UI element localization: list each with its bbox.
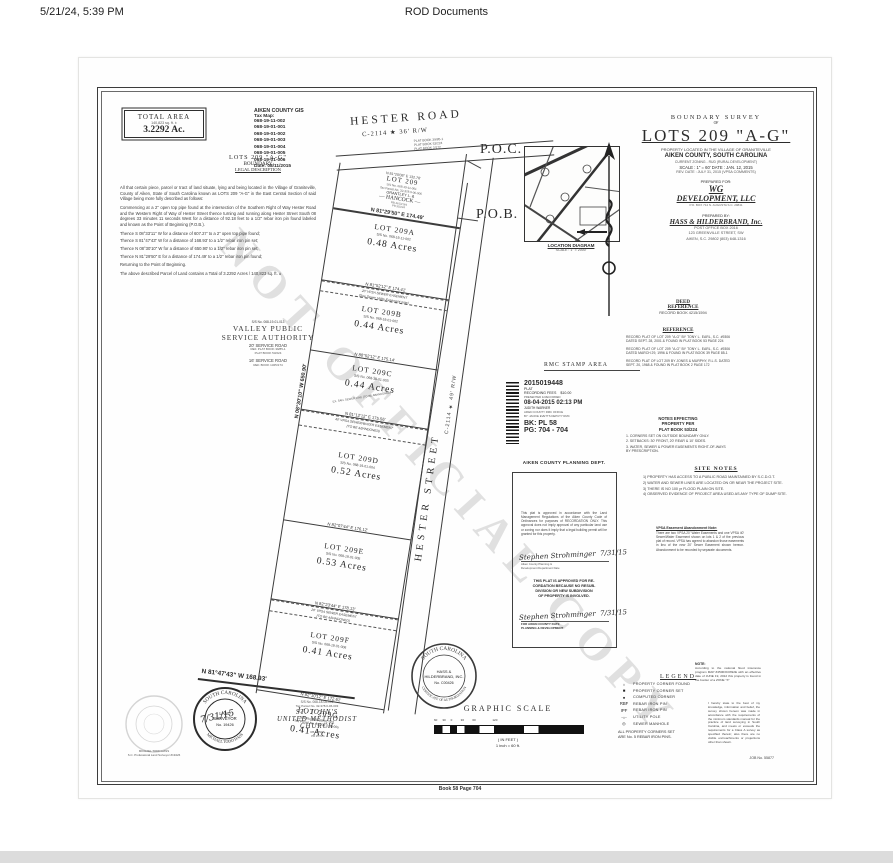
of-label: OF [616,121,816,125]
lot-209f: LOT 209F S/S No. 068-19-01-006 0.41 Acre… [257,623,394,710]
site-notes-heading: SITE NOTES [643,466,789,472]
reference-paragraph: RECORD PLAT OF LOT 209 "A-G" BY TONY L. … [626,335,730,344]
firm-name: HASS & HILDERBRAND, Inc. [616,218,816,226]
legal-description-heading: LOTS 209 "A-G" BOUNDARY LEGAL DESCRIPTIO… [178,154,338,172]
valley-ref2: REF. BOOK 1325/174 [214,363,322,367]
vpsa-note-body: There are two VPSA 20' Water Easements a… [656,531,744,552]
header-title: ROD Documents [0,6,893,18]
plat-drawing: NOT OFFICIAL COPY TOTAL AREA 140,823 sq.… [97,87,817,785]
total-area-box: TOTAL AREA 140,823 sq. ft. ± 3.2292 Ac. [124,110,204,138]
site-note-item: 1) PROPERTY HAS ACCESS TO A PUBLIC ROAD … [643,475,789,480]
lot-bearing-line: N 82°07'44" E 176.12' [284,514,411,539]
flood-note-body: According to the national flood insuranc… [695,666,761,682]
property-location-line2: AIKEN COUNTY, SOUTH CAROLINA [616,153,816,159]
notes-effecting-heading: NOTES EFFECTING PROPERTY PER PLAT BOOK 5… [626,416,730,432]
notes-effecting-item: 2. SETBACKS: 30' FRONT, 20' REAR & 10' S… [626,439,730,444]
hester-road-label: HESTER ROAD [350,108,462,128]
vpsa-note-block: VPSA Easement Abandonment Note: There ar… [656,526,744,552]
bottom-page-edge [0,851,893,863]
rmc-presented: PRESENTED & RECORDED [524,395,624,399]
reference-paragraph: RECORD PLAT OF LOT 209 "A-G" BY TONY L. … [626,347,730,356]
rmc-page: PG: 704 - 704 [524,427,624,434]
planning-dept-heading: AIKEN COUNTY PLANNING DEPT. [512,460,616,465]
book-page-footer: Book 58 Page 704 [380,786,540,792]
lot-209g: LOT 209G S/S No. 068-19-01-001 Tax Parce… [245,698,382,783]
site-note-item: 2) WATER AND SEWER LINES ARE LOCATED ON … [643,481,789,486]
client-name-1: WG [616,184,816,194]
title-block: BOUNDARY SURVEY OF LOTS 209 "A-G" PROPER… [616,114,816,242]
site-note-item: 3) THERE IS NO 100 yr FLOOD PLAIN ON SIT… [643,487,789,492]
site-note-item: 4) OBSERVED EVIDENCE OF PROJECT AREA USE… [643,492,789,497]
client-name-2: DEVELOPMENT, LLC [616,194,816,203]
notes-effecting-block: NOTES EFFECTING PROPERTY PER PLAT BOOK 5… [626,416,730,454]
certification-text: I hereby state to the best of my knowled… [708,702,760,745]
graphic-scale-bar [434,725,584,734]
legal-paragraph: Commencing at a 2" open top pipe found a… [120,205,316,228]
rmc-stamp-area-label: RMC STAMP AREA [544,362,640,371]
notes-effecting-item: 3. WATER, SEWER & POWER EASEMENTS RIGHT-… [626,445,730,454]
planning-body: This plat is approved in accordance with… [521,511,607,536]
auth-seal-arc-bottom: CERTIFICATE OF AUTHORIZATION [421,685,468,702]
site-notes-block: SITE NOTES 1) PROPERTY HAS ACCESS TO A P… [643,466,789,497]
boundary-survey-label: BOUNDARY SURVEY [616,114,816,121]
surveyor-seal-line3: No. 19426 [216,723,234,727]
vpsa-note-heading: VPSA Easement Abandonment Note: [656,526,744,530]
deed-ref-h2: REFERENCE [618,305,748,310]
firm-address: POST OFFICE BOX 2016 123 GREENVILLE STRE… [616,226,816,242]
rmc-barcode [506,382,519,444]
svg-text:CERTIFICATE OF AUTHORIZATION: CERTIFICATE OF AUTHORIZATION [421,685,468,702]
property-location-line1: PROPERTY LOCATED IN THE VILLAGE OF GRANI… [616,147,816,152]
job-number: JOB No. 55877 [698,756,774,760]
notes-effecting-item: 1. CORNERS SET ON OUTSIDE BOUNDARY ONLY. [626,434,730,439]
graphic-scale-ticks: 60 30 0 30 60 120 [434,718,582,722]
auth-seal-line3: No. C00426 [434,681,453,685]
embossed-seal-caption: MICHAEL TODD HASS S.C. Professional Land… [108,750,200,758]
total-area-acres: 3.2292 Ac. [127,125,201,135]
plat-title: LOTS 209 "A-G" [616,126,816,146]
sewer-manhole-icon: ◎ [618,721,630,726]
auth-seal-line2: HILDERBRAND, INC. [425,674,464,679]
legal-h3: LEGAL DESCRIPTION [178,167,338,172]
reference-paragraph: RECORD PLAT OF LOT 209 BY JONES & MURPHY… [626,359,730,368]
rmc-deputy: BY: JACKIE EVETTS DEPUTY RMC [524,414,624,418]
page: 5/21/24, 5:39 PM ROD Documents NOT OFFIC… [0,0,893,863]
hester-road-rw-label: C-2114 ★ 36' R/W [362,126,428,139]
graphic-scale-inch: 1 inch = 60 ft. [434,743,582,748]
hester-road-lines [336,140,555,170]
client-address: P.O. BOX 714 N. AUGUSTA S.C. 29841 [616,203,816,207]
legal-h1: LOTS 209 "A-G" [178,154,338,161]
rmc-fee-amount: $10.00 [560,391,571,395]
deed-ref-body: RECORD BOOK 4215/1594 [618,311,748,315]
rmc-number: 2015019448 [524,380,624,387]
rev-date-line: REV. DATE : JULY 31, 2015 (VPSA COMMENTS… [616,170,816,174]
zoning-line: CURRENT ZONING - RUD (RURAL DEVELOPMENT) [616,160,816,164]
rmc-book: BK: PL 58 [524,420,624,427]
total-area-label: TOTAL AREA [127,113,201,121]
flood-note-block: NOTE: According to the national flood in… [695,662,761,682]
graphic-scale-infeet: ( IN FEET ) [434,737,582,742]
reference-heading: REFERENCE [626,328,730,333]
deed-reference-block: DEED REFERENCE RECORD BOOK 4215/1594 [618,300,748,315]
legal-paragraph: Thence S 08°33'11" W for a distance of 6… [120,231,316,237]
reference-block: REFERENCE RECORD PLAT OF LOT 209 "A-G" B… [626,328,730,368]
legal-paragraph: All that certain piece, parcel or tract … [120,185,316,202]
